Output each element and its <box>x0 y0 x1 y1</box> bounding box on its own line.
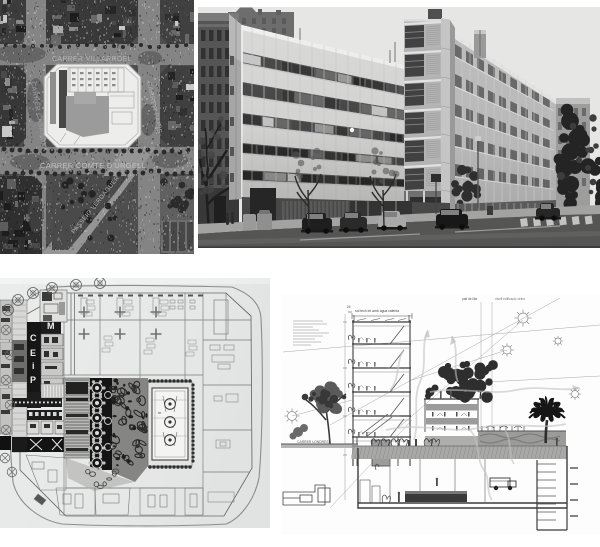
svg-text:P: P <box>30 375 36 385</box>
svg-text:C: C <box>30 333 37 343</box>
svg-text:24: 24 <box>347 305 351 309</box>
svg-text:M: M <box>47 321 55 331</box>
svg-text:CARRER COMTE D'URGELL: CARRER COMTE D'URGELL <box>40 161 146 170</box>
svg-text:sol tech int amb agua calenta: sol tech int amb agua calenta <box>355 309 399 313</box>
svg-text:pati de lilla: pati de lilla <box>462 297 477 301</box>
svg-text:CARRER VILLARROEL: CARRER VILLARROEL <box>52 56 132 63</box>
svg-text:CARRER LONDRES: CARRER LONDRES <box>297 440 329 444</box>
svg-text:nivell edificacio veina: nivell edificacio veina <box>495 297 525 301</box>
svg-text:E: E <box>30 348 36 358</box>
svg-text:i: i <box>32 361 35 371</box>
